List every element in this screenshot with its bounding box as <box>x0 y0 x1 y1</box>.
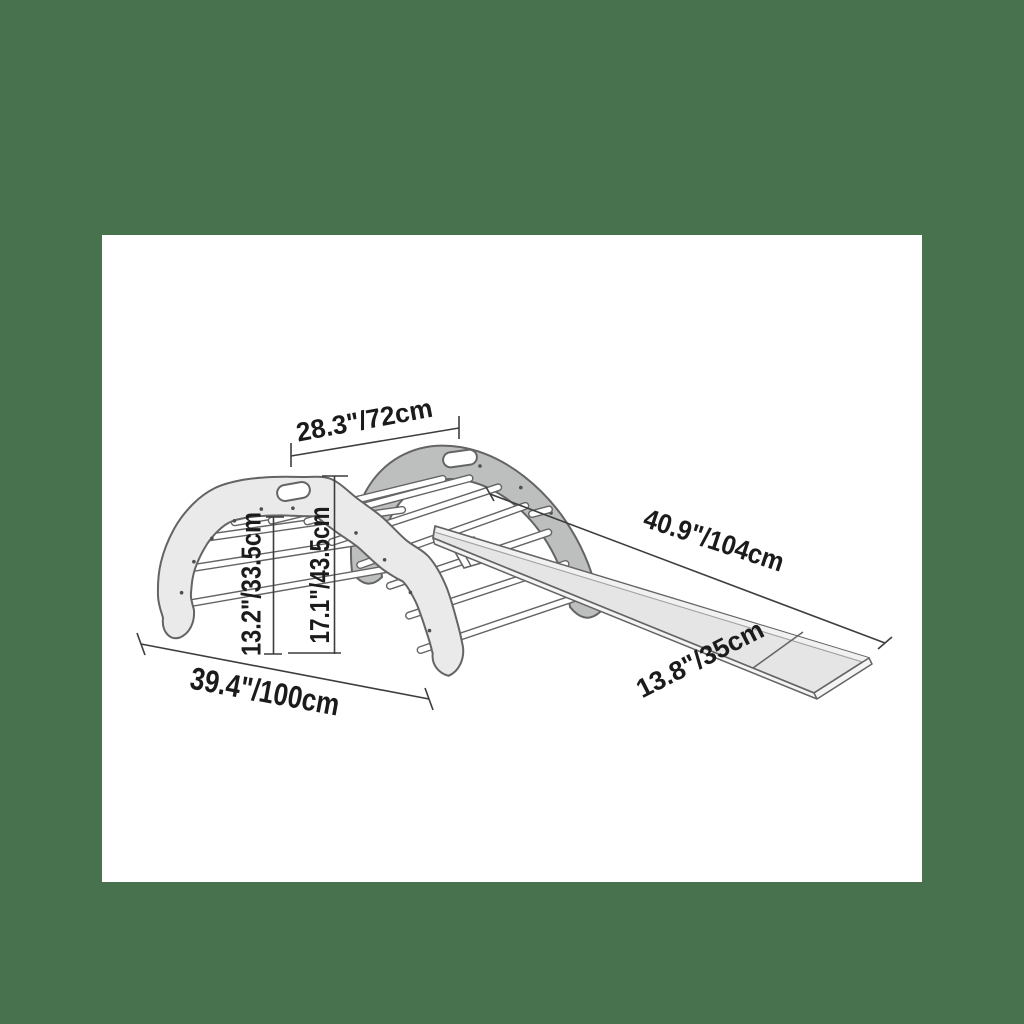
svg-text:17.1"/43.5cm: 17.1"/43.5cm <box>304 507 335 644</box>
svg-text:13.2"/33.5cm: 13.2"/33.5cm <box>236 512 267 656</box>
svg-text:28.3"/72cm: 28.3"/72cm <box>294 393 435 448</box>
svg-text:40.9"/104cm: 40.9"/104cm <box>640 502 788 577</box>
svg-text:39.4"/100cm: 39.4"/100cm <box>187 660 342 723</box>
